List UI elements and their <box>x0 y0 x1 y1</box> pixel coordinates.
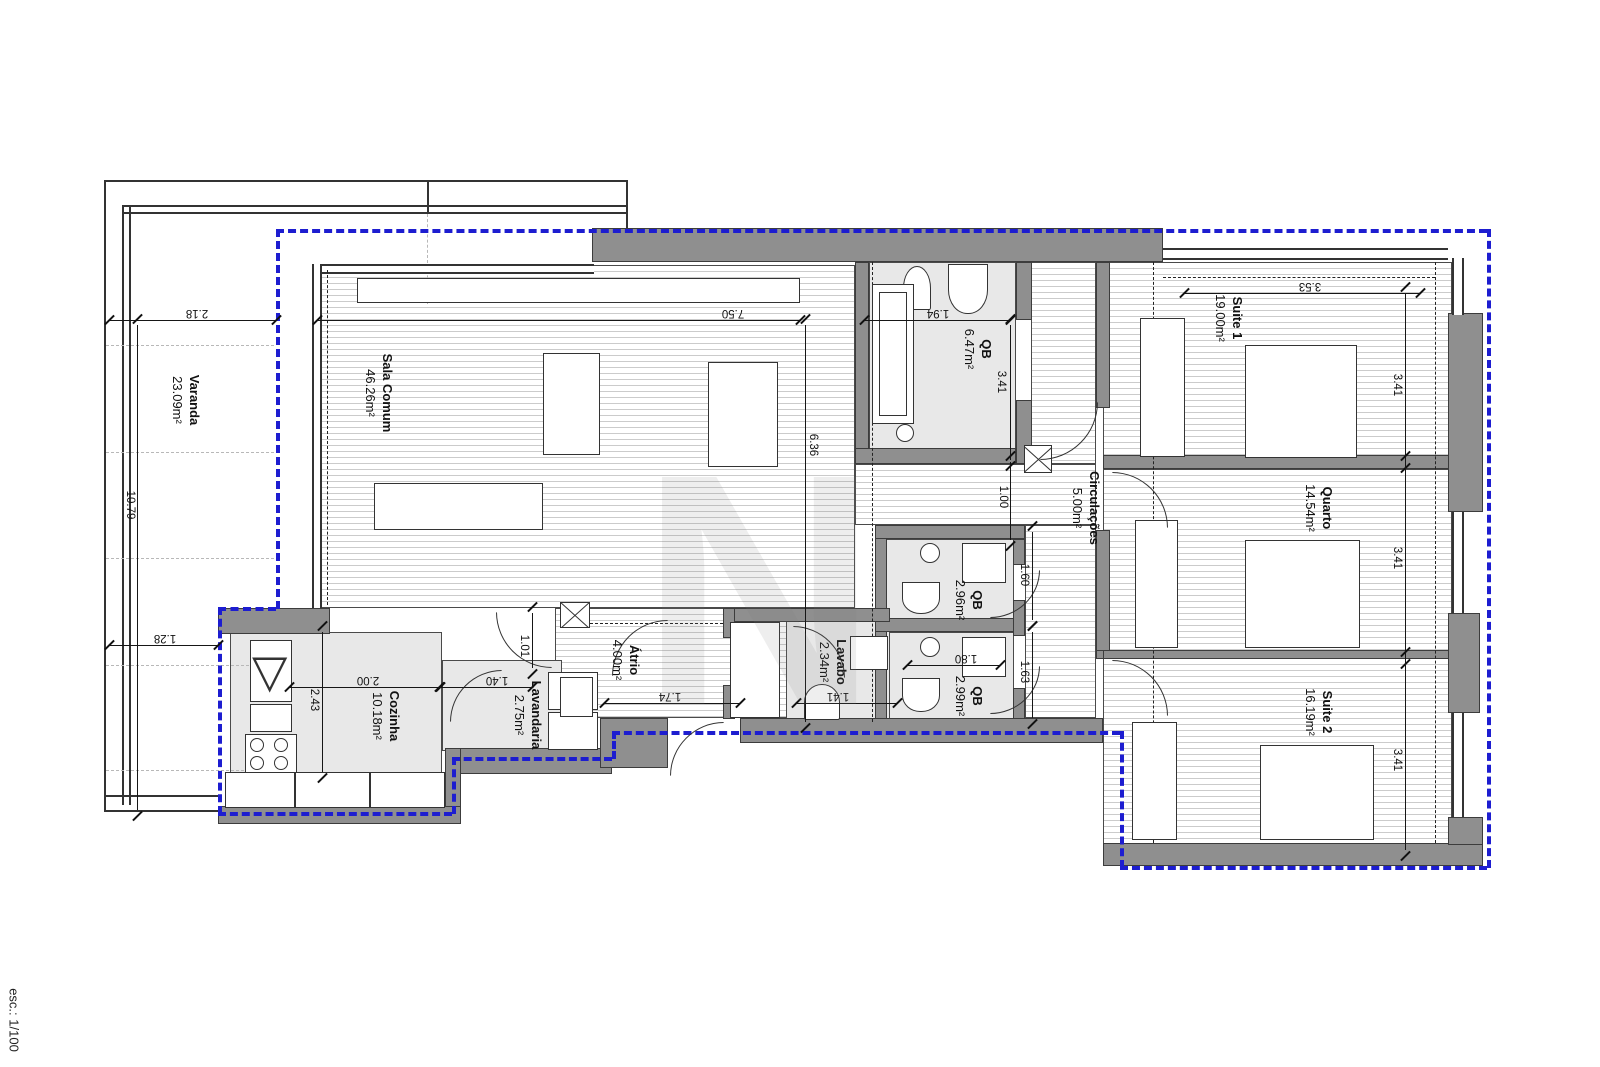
room-name: Quarto <box>1318 484 1335 532</box>
axis-line <box>106 345 274 346</box>
dim-line <box>1032 632 1033 718</box>
room-label-suite1: Suite 1 19.00m² <box>1211 294 1245 342</box>
room-area: 14.54m² <box>1301 484 1318 532</box>
faucet <box>920 637 940 657</box>
dim-line <box>532 613 533 668</box>
window-right-3 <box>1452 713 1464 817</box>
dim-line <box>1010 462 1011 540</box>
room-label-qb647: QB 6.47m² <box>960 329 994 369</box>
balcony-parapet <box>122 212 628 214</box>
dim-label: 3.41 <box>1391 749 1403 771</box>
window-sala-top <box>312 264 594 274</box>
room-name: Suite 2 <box>1318 688 1335 736</box>
room-name: Suite 1 <box>1228 294 1245 342</box>
window-right-1 <box>1452 258 1464 315</box>
burner <box>274 756 288 770</box>
dim-label: 3.41 <box>995 371 1007 393</box>
room-label-qb296: QB 2.96m² <box>951 580 985 620</box>
boundary-blue-dashed <box>1487 229 1491 868</box>
boundary-blue-dashed <box>218 607 222 814</box>
boundary-blue-dashed <box>276 229 280 609</box>
wall-suite2-bottom <box>1103 843 1483 866</box>
dim-line <box>1032 532 1033 620</box>
window-top-right <box>1163 248 1448 260</box>
room-name: Cozinha <box>385 691 402 742</box>
fridge-triangle-icon: ▽ <box>252 648 287 694</box>
room-label-atrio: Átrio 4.00m² <box>608 640 642 680</box>
room-name: Lavandaria <box>527 681 544 750</box>
room-area: 6.47m² <box>960 329 977 369</box>
dim-label: 1.80 <box>955 652 977 664</box>
room-label-cozinha: Cozinha 10.18m² <box>368 691 402 742</box>
floor-circulacoes-top <box>855 464 1096 525</box>
burner <box>274 738 288 752</box>
dryer <box>548 712 598 750</box>
dim-label: 1.01 <box>518 635 530 657</box>
dim-line <box>908 665 1000 666</box>
dim-label: 1.74 <box>659 690 681 702</box>
room-label-qb299: QB 2.99m² <box>951 676 985 716</box>
toilet <box>902 678 940 712</box>
dim-line <box>797 703 897 704</box>
boundary-blue-dashed <box>452 757 612 761</box>
axis-line <box>106 558 274 559</box>
dim-label: 1.00 <box>997 486 1009 508</box>
dim-label: 2.00 <box>357 674 379 686</box>
kitchen-counter <box>370 772 445 808</box>
balcony-parapet <box>122 205 628 207</box>
balcony-line <box>104 810 222 812</box>
room-label-lavabo: Lavabo 2.34m² <box>815 639 849 685</box>
balcony-line <box>104 180 106 812</box>
bathtub-inner <box>879 292 907 416</box>
kitchen-counter <box>225 772 295 808</box>
dim-line <box>110 645 218 646</box>
room-name: Circulações <box>1085 471 1102 545</box>
burner <box>250 738 264 752</box>
boundary-blue-dashed <box>612 731 616 759</box>
room-name: Átrio <box>625 640 642 680</box>
wall-bottom-step <box>445 748 612 774</box>
room-area: 10.18m² <box>368 691 385 742</box>
dim-label: 1.41 <box>827 690 849 702</box>
balcony-line <box>427 180 429 214</box>
room-area: 2.75m² <box>510 681 527 750</box>
boundary-blue-dashed <box>1120 731 1124 868</box>
floor-plan: ▽ 2.18 7.50 <box>0 0 1600 1067</box>
room-label-varanda: Varanda 23.09m² <box>168 375 202 426</box>
dim-label: 3.41 <box>1391 374 1403 396</box>
wardrobe-suite2 <box>1132 722 1177 840</box>
wall-right-pillar <box>1448 817 1483 845</box>
axis-line <box>106 452 274 453</box>
room-label-sala-comum: Sala Comum 46.26m² <box>361 354 395 433</box>
dim-label: 10.79 <box>124 491 136 520</box>
wardrobe-suite1 <box>1140 318 1185 457</box>
wall-qb-top <box>875 525 1025 539</box>
boundary-blue-dashed <box>276 229 1487 233</box>
toilet <box>948 264 988 314</box>
axis-line <box>1435 262 1436 843</box>
dim-line <box>137 325 138 810</box>
dim-line <box>318 320 800 321</box>
wall-bedrooms-vert <box>1096 530 1110 651</box>
dim-label: 1.28 <box>154 632 176 644</box>
table <box>543 353 600 455</box>
room-area: 5.00m² <box>1068 471 1085 545</box>
atrio-closet <box>560 677 593 717</box>
room-area: 4.00m² <box>608 640 625 680</box>
dim-line <box>1405 658 1406 850</box>
dim-label: 2.43 <box>308 689 320 711</box>
wall-right-pillar <box>1448 313 1483 512</box>
sideboard <box>357 278 800 303</box>
room-area: 16.19m² <box>1301 688 1318 736</box>
sofa <box>374 483 543 530</box>
wall-top-band <box>592 228 1163 262</box>
room-area: 2.96m² <box>951 580 968 620</box>
dim-line <box>805 325 806 722</box>
kitchen-counter <box>295 772 370 808</box>
dim-label: 1.63 <box>1018 661 1030 683</box>
dim-line <box>1405 462 1406 658</box>
room-label-lavandaria: Lavandaria 2.75m² <box>510 681 544 750</box>
shower-drain <box>896 424 914 442</box>
room-name: QB <box>977 329 994 369</box>
dim-label: 6.36 <box>807 434 819 456</box>
axis-line <box>106 665 274 666</box>
dim-label: 1.40 <box>486 674 508 686</box>
dim-label: 3.53 <box>1299 280 1321 292</box>
balcony-line <box>104 180 628 182</box>
boundary-blue-dashed <box>218 607 276 611</box>
wall-lavabo-top <box>723 608 890 622</box>
wall-bedrooms-vert <box>1096 262 1110 408</box>
room-area: 2.34m² <box>815 639 832 685</box>
room-label-circulacoes: Circulações 5.00m² <box>1068 471 1102 545</box>
boundary-blue-dashed <box>452 757 456 814</box>
room-name: QB <box>968 580 985 620</box>
room-label-quarto: Quarto 14.54m² <box>1301 484 1335 532</box>
kitchen-cabinet <box>250 704 292 732</box>
room-area: 23.09m² <box>168 375 185 426</box>
balcony-line <box>626 180 628 232</box>
wall-qb647-bottom <box>855 448 1016 464</box>
room-area: 19.00m² <box>1211 294 1228 342</box>
washbasin <box>850 636 888 670</box>
wall-qb-mid <box>875 618 1025 632</box>
room-name: QB <box>968 676 985 716</box>
dim-line <box>865 320 1010 321</box>
toilet <box>902 582 940 614</box>
dim-label: 3.41 <box>1391 547 1403 569</box>
table <box>708 362 778 467</box>
bed-suite1 <box>1245 345 1357 458</box>
room-label-suite2: Suite 2 16.19m² <box>1301 688 1335 736</box>
dim-label: 7.50 <box>722 307 744 319</box>
dim-line <box>322 632 323 772</box>
dim-label: 1.94 <box>927 307 949 319</box>
boundary-blue-dashed <box>218 812 452 816</box>
wall-kitchen-top <box>218 608 330 634</box>
boundary-blue-dashed <box>1120 866 1487 870</box>
dim-label: 2.18 <box>186 307 208 319</box>
wall-qb647-left <box>855 262 869 454</box>
room-name: Varanda <box>185 375 202 426</box>
dim-line <box>605 703 740 704</box>
room-area: 2.99m² <box>951 676 968 716</box>
wall-qb647-right <box>1016 262 1032 320</box>
room-name: Lavabo <box>832 639 849 685</box>
wardrobe-quarto <box>1135 520 1178 648</box>
axis-line <box>1163 277 1435 278</box>
dim-line <box>1010 325 1011 460</box>
bed-quarto <box>1245 540 1360 648</box>
window-right-2 <box>1452 512 1464 613</box>
dim-label: 1.60 <box>1018 564 1030 586</box>
burner <box>250 756 264 770</box>
shaft-box <box>560 602 590 628</box>
bed-suite2 <box>1260 745 1374 840</box>
room-name: Sala Comum <box>378 354 395 433</box>
room-area: 46.26m² <box>361 354 378 433</box>
wall-right-pillar <box>1448 613 1480 713</box>
dim-line <box>1405 293 1406 462</box>
faucet <box>920 543 940 563</box>
scale-label: esc.: 1/100 <box>7 988 22 1052</box>
